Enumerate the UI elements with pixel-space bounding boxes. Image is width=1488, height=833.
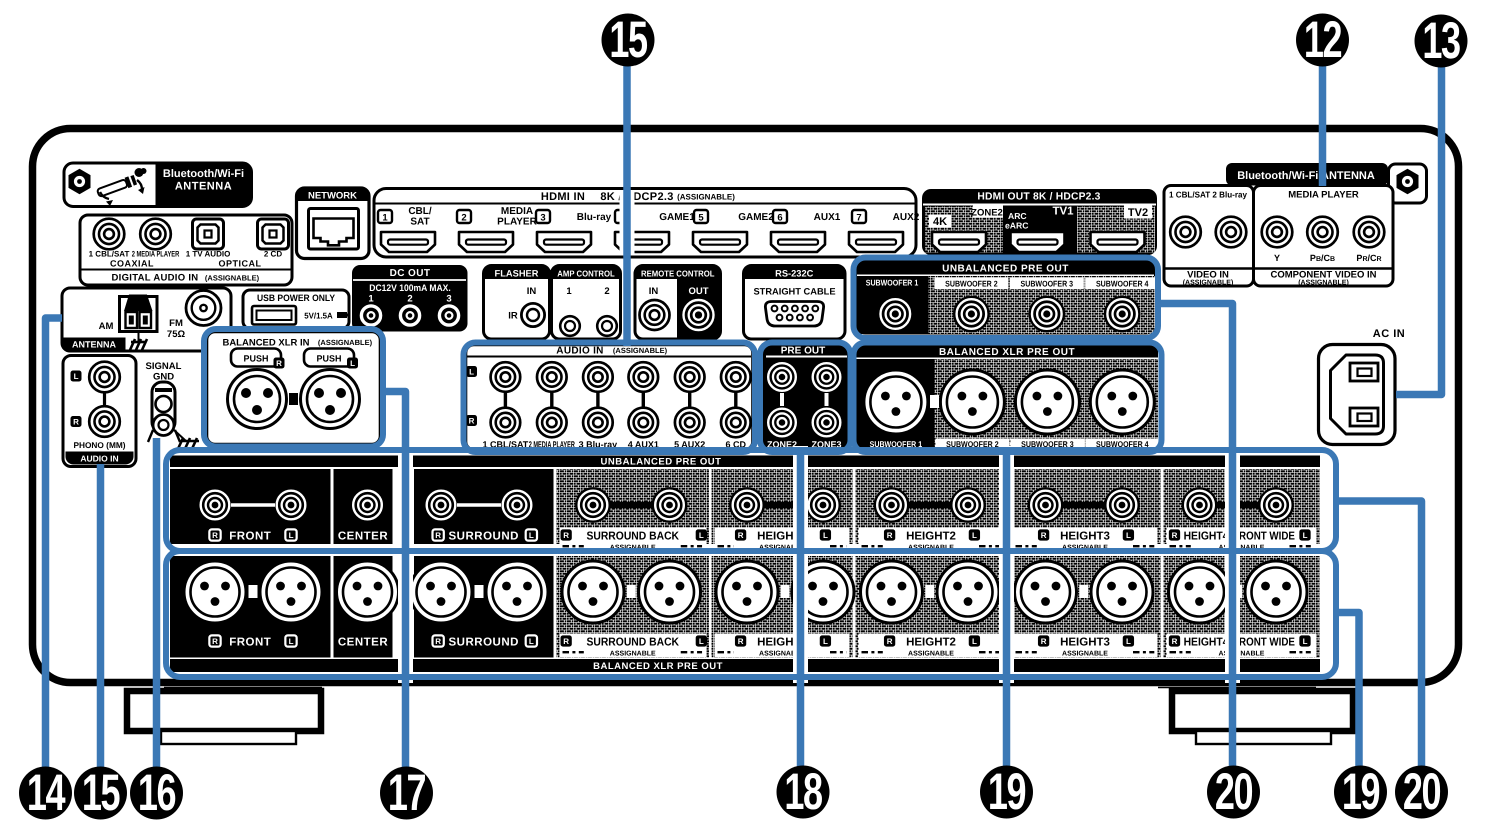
svg-text:AUX2: AUX2 — [893, 212, 920, 223]
svg-text:AUDIO IN: AUDIO IN — [556, 346, 603, 357]
svg-text:HEIGHT2: HEIGHT2 — [906, 637, 956, 649]
svg-text:R: R — [1172, 637, 1178, 646]
svg-text:(ASSIGNABLE): (ASSIGNABLE) — [205, 274, 260, 283]
svg-text:FM: FM — [169, 318, 183, 329]
svg-text:(ASSIGNABLE): (ASSIGNABLE) — [677, 193, 735, 202]
svg-text:UNBALANCED PRE OUT: UNBALANCED PRE OUT — [942, 264, 1069, 275]
svg-text:1 CBL/SAT: 1 CBL/SAT — [89, 250, 130, 259]
svg-text:(ASSIGNABLE): (ASSIGNABLE) — [1298, 279, 1349, 287]
svg-text:2 MEDIA PLAYER: 2 MEDIA PLAYER — [132, 250, 180, 259]
svg-text:HDMI OUT 8K / HDCP2.3: HDMI OUT 8K / HDCP2.3 — [977, 192, 1100, 203]
svg-text:R: R — [738, 637, 744, 646]
svg-text:REMOTE CONTROL: REMOTE CONTROL — [641, 269, 714, 279]
svg-text:(ASSIGNABLE): (ASSIGNABLE) — [1183, 279, 1234, 287]
svg-text:3: 3 — [540, 212, 545, 223]
svg-text:BALANCED XLR PRE OUT: BALANCED XLR PRE OUT — [939, 347, 1075, 358]
svg-text:FRONT WIDE: FRONT WIDE — [1233, 637, 1295, 649]
svg-text:17: 17 — [388, 763, 426, 821]
svg-text:Bluetooth/Wi-Fi ANTENNA: Bluetooth/Wi-Fi ANTENNA — [1237, 170, 1375, 182]
svg-text:IR: IR — [508, 311, 518, 322]
svg-text:SUBWOOFER 1: SUBWOOFER 1 — [866, 278, 919, 288]
svg-text:20: 20 — [1215, 762, 1253, 820]
svg-text:19: 19 — [1342, 762, 1380, 820]
svg-text:SURROUND BACK: SURROUND BACK — [586, 531, 679, 543]
svg-text:AUX1: AUX1 — [814, 212, 841, 223]
svg-text:DIGITAL AUDIO IN: DIGITAL AUDIO IN — [112, 273, 199, 284]
svg-text:7: 7 — [856, 212, 861, 223]
svg-text:FRONT WIDE: FRONT WIDE — [1233, 531, 1295, 543]
svg-text:L: L — [1303, 531, 1308, 540]
svg-text:6: 6 — [777, 212, 782, 223]
svg-text:FRONT: FRONT — [229, 637, 271, 649]
svg-text:IN: IN — [649, 286, 659, 297]
svg-text:ZONE2: ZONE2 — [971, 208, 1003, 219]
svg-text:19: 19 — [988, 762, 1026, 820]
svg-text:18: 18 — [784, 762, 822, 820]
svg-text:OPTICAL: OPTICAL — [219, 259, 262, 269]
svg-text:MEDIA: MEDIA — [501, 206, 533, 217]
svg-text:R: R — [435, 637, 441, 646]
svg-text:15: 15 — [82, 763, 120, 821]
svg-text:STRAIGHT CABLE: STRAIGHT CABLE — [753, 287, 835, 297]
svg-text:PLAYER: PLAYER — [497, 217, 537, 228]
svg-text:L: L — [74, 372, 79, 381]
svg-text:ASSIGNABLE: ASSIGNABLE — [610, 650, 656, 657]
svg-text:16: 16 — [138, 763, 176, 821]
svg-text:PRE OUT: PRE OUT — [781, 346, 825, 357]
svg-text:2: 2 — [604, 286, 609, 297]
svg-text:SURROUND: SURROUND — [449, 637, 519, 649]
svg-text:1: 1 — [566, 286, 572, 297]
svg-text:DC OUT: DC OUT — [390, 268, 431, 279]
svg-text:L: L — [972, 531, 977, 540]
svg-text:HEIGHT2: HEIGHT2 — [906, 531, 956, 543]
svg-text:SURROUND: SURROUND — [449, 531, 519, 543]
svg-text:AC IN: AC IN — [1373, 328, 1405, 340]
svg-text:DC12V 100mA MAX.: DC12V 100mA MAX. — [369, 283, 450, 294]
svg-text:BALANCED XLR IN: BALANCED XLR IN — [222, 338, 309, 349]
svg-text:2: 2 — [461, 212, 466, 223]
svg-text:L: L — [350, 359, 355, 368]
svg-text:HEIGHT4: HEIGHT4 — [1184, 637, 1229, 649]
svg-text:4K: 4K — [933, 216, 947, 228]
svg-text:3: 3 — [446, 294, 451, 305]
svg-text:CENTER: CENTER — [338, 531, 388, 543]
svg-text:R: R — [276, 359, 282, 368]
svg-text:L: L — [972, 637, 977, 646]
svg-text:FLASHER: FLASHER — [495, 269, 539, 279]
svg-text:Bluetooth/Wi-Fi: Bluetooth/Wi-Fi — [163, 168, 244, 180]
svg-text:L: L — [289, 637, 294, 646]
svg-text:5: 5 — [698, 212, 704, 223]
svg-text:1: 1 — [368, 294, 374, 305]
svg-text:CENTER: CENTER — [338, 637, 388, 649]
svg-text:ARC: ARC — [1008, 211, 1027, 221]
svg-text:ANTENNA: ANTENNA — [175, 181, 232, 193]
svg-text:R: R — [212, 637, 218, 646]
svg-text:R: R — [1041, 531, 1047, 540]
svg-text:MEDIA PLAYER: MEDIA PLAYER — [1288, 190, 1359, 201]
svg-text:GAME1: GAME1 — [659, 212, 695, 223]
svg-text:(ASSIGNABLE): (ASSIGNABLE) — [318, 338, 373, 347]
svg-text:1 CBL/SAT 2 Blu-ray: 1 CBL/SAT 2 Blu-ray — [1169, 190, 1247, 200]
svg-text:HDMI IN: HDMI IN — [541, 191, 585, 203]
svg-text:BALANCED XLR PRE OUT: BALANCED XLR PRE OUT — [593, 661, 723, 672]
svg-text:IN: IN — [527, 286, 537, 297]
svg-text:SAT: SAT — [410, 217, 429, 228]
svg-text:L: L — [289, 531, 294, 540]
svg-text:R: R — [212, 531, 218, 540]
svg-text:L: L — [469, 368, 474, 377]
svg-text:14: 14 — [27, 763, 66, 821]
svg-text:2: 2 — [407, 294, 412, 305]
svg-text:R: R — [435, 531, 441, 540]
svg-text:R: R — [887, 531, 893, 540]
svg-text:SUBWOOFER 3: SUBWOOFER 3 — [1021, 279, 1074, 289]
svg-text:HEIGHT3: HEIGHT3 — [1060, 531, 1110, 543]
svg-text:TV1: TV1 — [1052, 206, 1074, 218]
svg-text:R: R — [563, 637, 569, 646]
svg-text:eARC: eARC — [1005, 221, 1028, 231]
svg-text:CBL/: CBL/ — [408, 206, 432, 217]
svg-text:L: L — [823, 637, 828, 646]
svg-text:R: R — [887, 637, 893, 646]
svg-text:OUT: OUT — [688, 286, 708, 297]
svg-text:ANTENNA: ANTENNA — [72, 340, 116, 350]
svg-text:AUDIO IN: AUDIO IN — [80, 454, 118, 464]
svg-text:GAME2: GAME2 — [738, 212, 774, 223]
svg-text:ASSIGNABLE: ASSIGNABLE — [908, 650, 954, 657]
svg-text:SUBWOOFER 4: SUBWOOFER 4 — [1096, 279, 1149, 289]
svg-text:12: 12 — [1304, 10, 1342, 68]
svg-text:L: L — [529, 637, 534, 646]
svg-text:20: 20 — [1403, 762, 1441, 820]
svg-text:RS-232C: RS-232C — [775, 269, 814, 279]
svg-text:R: R — [738, 531, 744, 540]
svg-text:PHONO (MM): PHONO (MM) — [73, 440, 125, 450]
svg-text:Y: Y — [1274, 253, 1280, 263]
svg-text:13: 13 — [1422, 11, 1460, 69]
svg-text:2 CD: 2 CD — [264, 250, 282, 259]
svg-text:USB POWER ONLY: USB POWER ONLY — [257, 293, 336, 303]
svg-text:PUSH: PUSH — [316, 354, 341, 364]
svg-text:R: R — [1172, 531, 1178, 540]
svg-text:L: L — [823, 531, 828, 540]
svg-text:5V/1.5A: 5V/1.5A — [304, 311, 332, 321]
svg-text:FRONT: FRONT — [229, 531, 271, 543]
svg-text:L: L — [1126, 531, 1131, 540]
svg-text:R: R — [73, 418, 79, 427]
svg-text:L: L — [1126, 637, 1131, 646]
svg-text:SURROUND BACK: SURROUND BACK — [586, 637, 679, 649]
svg-text:1: 1 — [382, 212, 388, 223]
svg-text:SUBWOOFER 2: SUBWOOFER 2 — [945, 279, 998, 289]
svg-text:L: L — [529, 531, 534, 540]
svg-text:(ASSIGNABLE): (ASSIGNABLE) — [613, 346, 668, 355]
svg-text:Blu-ray: Blu-ray — [577, 212, 612, 223]
svg-text:R: R — [469, 417, 475, 426]
svg-text:HEIGHT4: HEIGHT4 — [1184, 531, 1229, 543]
svg-text:PUSH: PUSH — [243, 354, 268, 364]
svg-text:L: L — [699, 531, 704, 540]
svg-text:SIGNAL: SIGNAL — [146, 361, 182, 372]
svg-text:UNBALANCED PRE OUT: UNBALANCED PRE OUT — [601, 457, 722, 468]
svg-text:ASSIGNABLE: ASSIGNABLE — [1062, 650, 1108, 657]
svg-text:AM: AM — [99, 321, 114, 332]
svg-text:15: 15 — [609, 10, 647, 68]
svg-text:AMP CONTROL: AMP CONTROL — [557, 269, 614, 279]
svg-text:HEIGHT3: HEIGHT3 — [1060, 637, 1110, 649]
svg-text:NETWORK: NETWORK — [308, 191, 357, 202]
svg-text:R: R — [563, 531, 569, 540]
svg-text:1 TV AUDIO: 1 TV AUDIO — [186, 250, 231, 259]
svg-text:TV2: TV2 — [1128, 207, 1148, 219]
svg-text:L: L — [1303, 637, 1308, 646]
svg-text:COAXIAL: COAXIAL — [110, 259, 154, 269]
svg-text:R: R — [1041, 637, 1047, 646]
svg-text:75Ω: 75Ω — [167, 329, 186, 340]
svg-text:L: L — [699, 637, 704, 646]
svg-text:8K / HDCP2.3: 8K / HDCP2.3 — [600, 191, 673, 203]
